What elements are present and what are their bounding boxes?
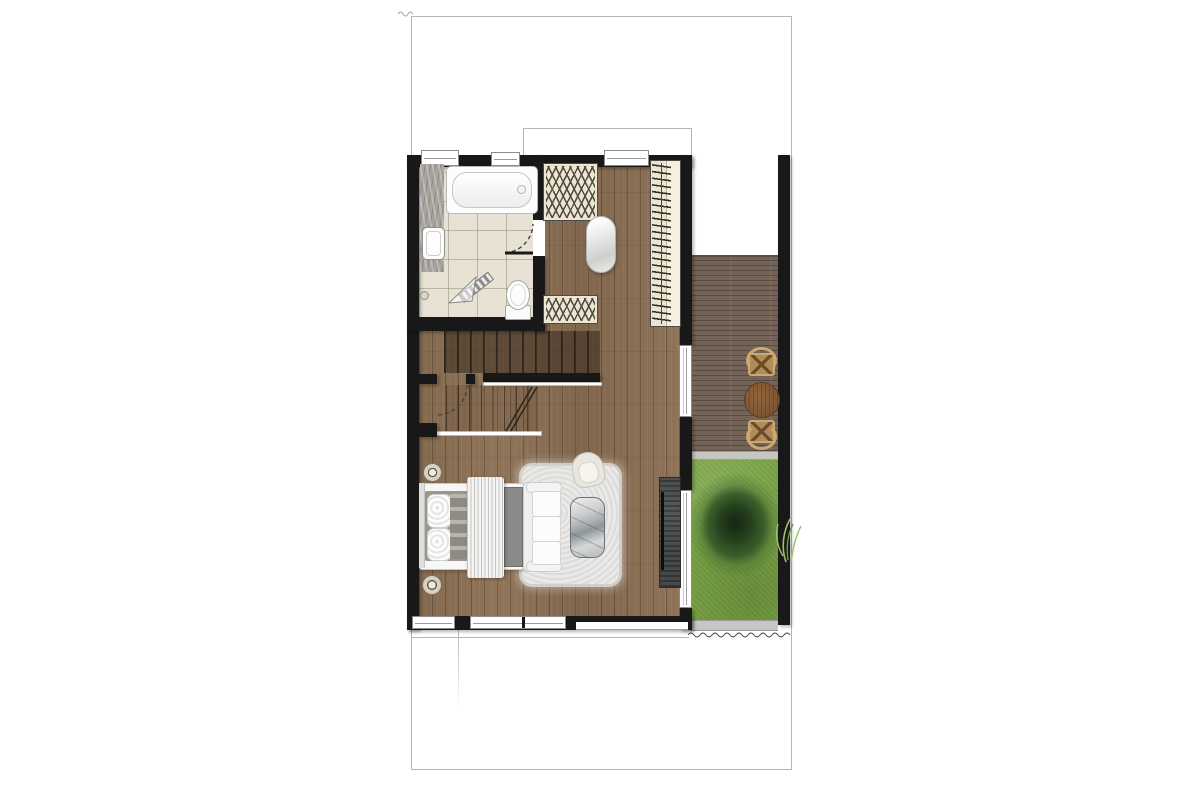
outdoor-chair-top-seat — [748, 353, 775, 376]
stair-rail-nosing — [483, 382, 602, 386]
boundary-fence-right — [778, 155, 790, 625]
lawn-upper-edging — [690, 451, 778, 460]
walk-in-closet — [650, 160, 681, 327]
wall-left — [407, 155, 419, 630]
border-plant-sprig-2 — [791, 526, 801, 562]
stair-corner-nub — [419, 423, 437, 437]
tv-screen — [661, 492, 664, 570]
floor-plan — [0, 0, 1200, 800]
bathtub-drain — [517, 185, 526, 194]
window-top-small — [491, 152, 520, 166]
stair-upper-flight — [444, 331, 600, 373]
stair-door-jamb-right — [466, 374, 475, 384]
sofa-cushion-1 — [532, 491, 561, 517]
wardrobe-upper — [543, 163, 598, 221]
sink-basin — [422, 227, 445, 260]
bed-pillow-2 — [427, 528, 452, 561]
bed-blanket-fold — [450, 494, 467, 559]
bed-pillow-1 — [427, 494, 452, 528]
floor-drain — [420, 291, 429, 300]
garden-tree-core — [706, 492, 764, 554]
lot-division-line — [458, 630, 459, 710]
stair-rail-wall — [483, 373, 600, 382]
daybed — [586, 216, 616, 273]
window-bottom-center — [470, 616, 566, 629]
stair-bottom-nosing — [421, 431, 542, 436]
stair-lower-flight — [446, 385, 539, 432]
bathtub — [446, 166, 538, 214]
window-top-dressing — [604, 150, 649, 166]
front-ledge-line-2 — [411, 637, 689, 638]
bottom-wall-thin-section — [576, 622, 688, 630]
bedside-stool-bottom — [422, 575, 442, 595]
bathroom-door-opening — [533, 220, 545, 256]
bedside-stool-top — [423, 463, 442, 482]
window-mullion — [522, 617, 525, 628]
stair-door-jamb-left — [419, 374, 437, 384]
deck-door — [679, 345, 692, 417]
wardrobe-lower — [543, 295, 598, 324]
toilet-bowl — [506, 280, 530, 310]
sofa-cushion-3 — [532, 541, 561, 565]
lawn-lower-edging — [690, 620, 778, 631]
deck-edge-line — [690, 255, 778, 257]
outdoor-round-table — [744, 382, 780, 418]
outdoor-chair-bottom-back — [746, 423, 777, 450]
closet-hanger-rail — [661, 163, 662, 324]
window-bottom-left — [412, 616, 455, 629]
wall-right-middle — [680, 417, 692, 490]
foot-bench — [504, 487, 523, 567]
sofa-cushion-2 — [532, 516, 561, 542]
sofa — [523, 482, 562, 572]
coffee-table — [570, 497, 605, 558]
wall-right-upper — [680, 155, 692, 345]
bed-throw-drape — [467, 477, 504, 578]
